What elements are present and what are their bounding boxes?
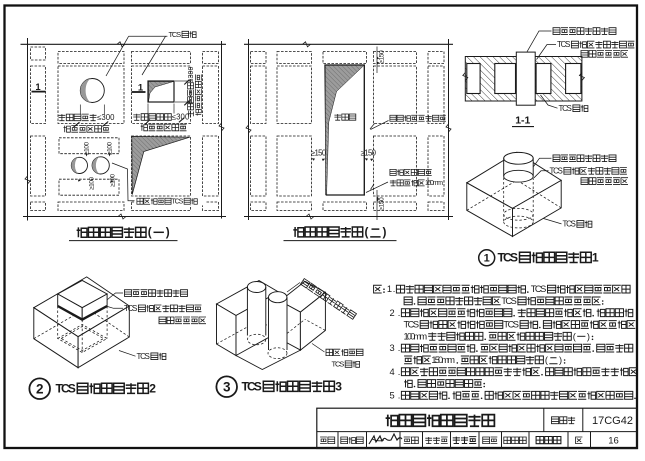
svg-text:≤300: ≤300 xyxy=(188,67,195,83)
svg-text:16: 16 xyxy=(608,435,619,446)
svg-text:1.: 1. xyxy=(387,284,395,294)
svg-text:TCS: TCS xyxy=(404,320,420,330)
svg-text:TCS: TCS xyxy=(503,320,519,330)
svg-text:(: ( xyxy=(148,225,152,239)
svg-text:TCS: TCS xyxy=(559,104,572,113)
svg-text:≥100: ≥100 xyxy=(107,142,114,155)
svg-text:2: 2 xyxy=(36,382,44,397)
svg-text:TCS: TCS xyxy=(563,220,576,229)
svg-text:≥100: ≥100 xyxy=(89,177,96,190)
svg-text:1: 1 xyxy=(484,253,490,265)
svg-text:TCS: TCS xyxy=(169,30,182,39)
svg-text:(: ( xyxy=(365,225,369,239)
svg-text:≥150: ≥150 xyxy=(379,197,386,211)
svg-text:≥150: ≥150 xyxy=(311,148,327,157)
svg-text:1: 1 xyxy=(592,250,599,264)
svg-text:≥100: ≥100 xyxy=(110,174,117,187)
svg-text:): ) xyxy=(383,225,387,239)
svg-text:2: 2 xyxy=(149,381,156,395)
svg-text:): ) xyxy=(587,331,590,341)
svg-text:1-1: 1-1 xyxy=(515,115,530,127)
svg-text:TCS: TCS xyxy=(56,381,76,395)
svg-text:): ) xyxy=(166,225,170,239)
svg-text:TCS: TCS xyxy=(498,250,519,264)
svg-text:TCS: TCS xyxy=(242,379,262,393)
svg-text:3: 3 xyxy=(335,379,342,393)
svg-text:≤300: ≤300 xyxy=(97,113,115,122)
svg-text:≥150: ≥150 xyxy=(379,50,386,64)
svg-text:TCS: TCS xyxy=(501,296,517,306)
svg-text:3: 3 xyxy=(223,380,231,395)
svg-text:TCS: TCS xyxy=(172,199,184,206)
svg-text:150mm: 150mm xyxy=(425,179,443,187)
svg-text:TCS: TCS xyxy=(137,352,150,361)
svg-text:100mm: 100mm xyxy=(404,331,428,341)
svg-text:17CG42: 17CG42 xyxy=(592,415,633,427)
svg-text:≥100: ≥100 xyxy=(84,142,91,155)
svg-text:TCS: TCS xyxy=(124,304,137,313)
svg-text:TCS: TCS xyxy=(550,167,563,176)
svg-text:≥150: ≥150 xyxy=(361,148,377,157)
svg-text:): ) xyxy=(559,355,562,365)
svg-text:TCS: TCS xyxy=(332,360,345,369)
svg-text:TCS: TCS xyxy=(557,40,570,49)
svg-text:150mm: 150mm xyxy=(431,355,455,365)
svg-text:TCS: TCS xyxy=(531,284,547,294)
